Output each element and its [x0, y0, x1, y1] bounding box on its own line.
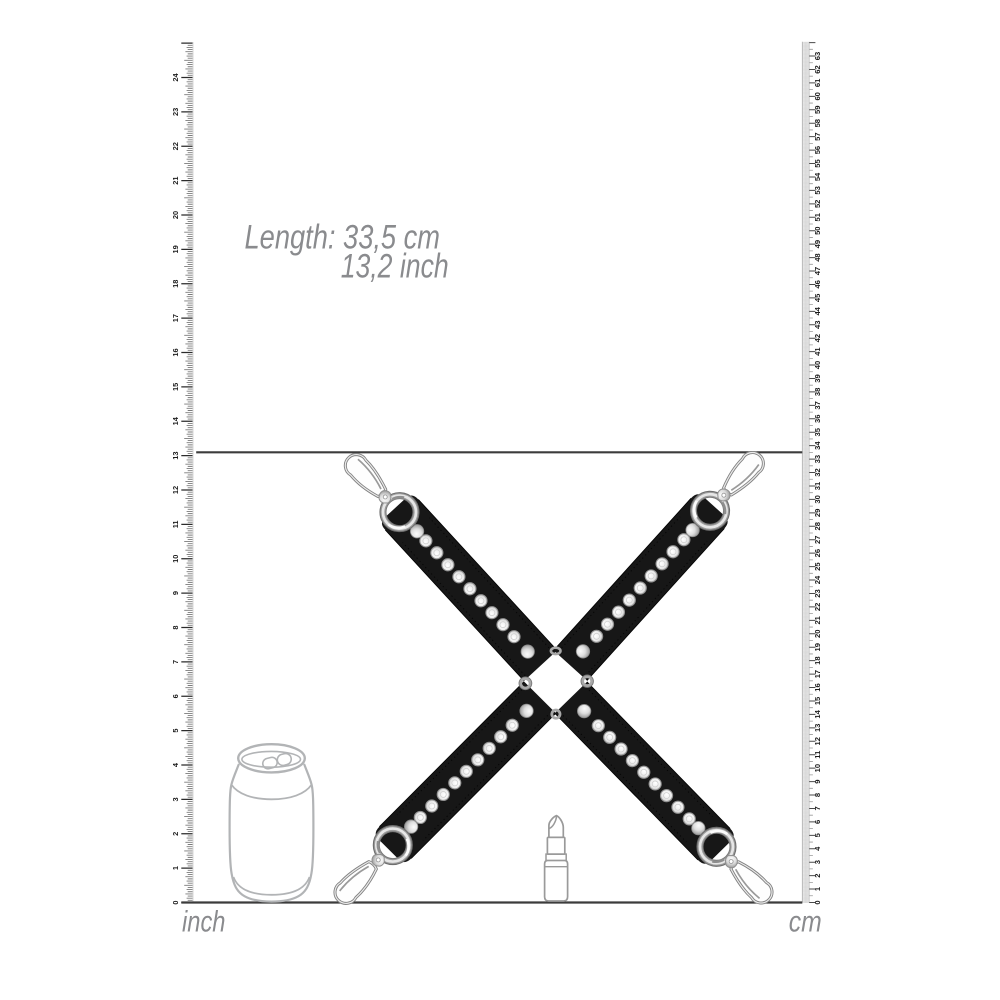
- svg-text:46: 46: [813, 280, 822, 288]
- svg-text:3: 3: [813, 860, 822, 864]
- svg-text:56: 56: [813, 146, 822, 154]
- svg-text:41: 41: [813, 347, 822, 356]
- svg-text:42: 42: [813, 334, 822, 342]
- svg-text:3: 3: [171, 797, 180, 801]
- svg-text:39: 39: [813, 374, 822, 382]
- svg-text:31: 31: [813, 481, 822, 490]
- svg-text:55: 55: [813, 159, 822, 168]
- svg-text:36: 36: [813, 415, 822, 423]
- svg-text:20: 20: [171, 211, 180, 219]
- svg-text:59: 59: [813, 106, 822, 114]
- svg-text:6: 6: [171, 694, 180, 698]
- svg-text:52: 52: [813, 200, 822, 208]
- svg-text:14: 14: [813, 709, 822, 718]
- svg-text:16: 16: [813, 683, 822, 691]
- svg-text:5: 5: [171, 729, 180, 733]
- svg-text:13: 13: [813, 724, 822, 732]
- svg-text:10: 10: [813, 764, 822, 772]
- svg-text:21: 21: [813, 615, 822, 624]
- svg-text:21: 21: [171, 177, 180, 185]
- svg-text:29: 29: [813, 509, 822, 517]
- svg-text:43: 43: [813, 321, 822, 329]
- svg-text:0: 0: [813, 900, 822, 904]
- svg-text:28: 28: [813, 522, 822, 530]
- svg-text:61: 61: [813, 78, 822, 87]
- svg-text:62: 62: [813, 65, 822, 73]
- svg-text:7: 7: [171, 660, 180, 664]
- svg-text:49: 49: [813, 240, 822, 248]
- svg-text:12: 12: [813, 737, 822, 745]
- svg-text:17: 17: [813, 670, 822, 678]
- svg-text:27: 27: [813, 536, 822, 544]
- svg-text:19: 19: [813, 643, 822, 651]
- svg-text:0: 0: [171, 900, 180, 904]
- svg-text:15: 15: [813, 696, 822, 705]
- svg-text:2: 2: [813, 874, 822, 878]
- svg-text:16: 16: [171, 348, 180, 356]
- svg-text:11: 11: [171, 520, 180, 528]
- svg-text:13: 13: [171, 452, 180, 460]
- svg-text:53: 53: [813, 186, 822, 194]
- svg-text:58: 58: [813, 119, 822, 127]
- svg-text:50: 50: [813, 226, 822, 234]
- svg-text:22: 22: [171, 142, 180, 150]
- svg-text:45: 45: [813, 293, 822, 302]
- svg-text:11: 11: [813, 750, 822, 759]
- svg-text:20: 20: [813, 630, 822, 638]
- svg-text:23: 23: [813, 589, 822, 597]
- svg-text:35: 35: [813, 427, 822, 436]
- svg-text:10: 10: [171, 555, 180, 563]
- svg-text:12: 12: [171, 486, 180, 494]
- svg-text:24: 24: [171, 73, 180, 82]
- svg-text:6: 6: [813, 820, 822, 824]
- svg-text:48: 48: [813, 253, 822, 261]
- svg-text:2: 2: [171, 832, 180, 836]
- svg-text:47: 47: [813, 267, 822, 275]
- svg-text:8: 8: [813, 793, 822, 797]
- svg-text:1: 1: [171, 866, 180, 870]
- svg-text:25: 25: [813, 562, 822, 571]
- svg-text:9: 9: [171, 591, 180, 595]
- svg-text:7: 7: [813, 806, 822, 810]
- svg-text:18: 18: [813, 656, 822, 664]
- svg-text:57: 57: [813, 132, 822, 140]
- svg-text:15: 15: [171, 383, 180, 391]
- svg-text:9: 9: [813, 779, 822, 783]
- svg-text:34: 34: [813, 441, 822, 450]
- svg-text:24: 24: [813, 575, 822, 584]
- svg-text:13,2 inch: 13,2 inch: [341, 247, 449, 285]
- svg-text:14: 14: [171, 416, 180, 425]
- svg-text:54: 54: [813, 172, 822, 181]
- svg-text:17: 17: [171, 314, 180, 322]
- svg-text:8: 8: [171, 625, 180, 629]
- svg-text:40: 40: [813, 361, 822, 369]
- svg-text:60: 60: [813, 92, 822, 100]
- svg-text:63: 63: [813, 52, 822, 60]
- svg-text:37: 37: [813, 401, 822, 409]
- svg-text:inch: inch: [182, 906, 226, 939]
- svg-text:30: 30: [813, 495, 822, 503]
- svg-text:51: 51: [813, 212, 822, 221]
- svg-text:44: 44: [813, 306, 822, 315]
- svg-text:33: 33: [813, 455, 822, 463]
- svg-text:32: 32: [813, 468, 822, 476]
- svg-text:18: 18: [171, 280, 180, 288]
- svg-text:23: 23: [171, 108, 180, 116]
- svg-text:26: 26: [813, 549, 822, 557]
- svg-text:38: 38: [813, 388, 822, 396]
- svg-text:22: 22: [813, 603, 822, 611]
- svg-text:19: 19: [171, 245, 180, 253]
- svg-text:cm: cm: [789, 906, 822, 939]
